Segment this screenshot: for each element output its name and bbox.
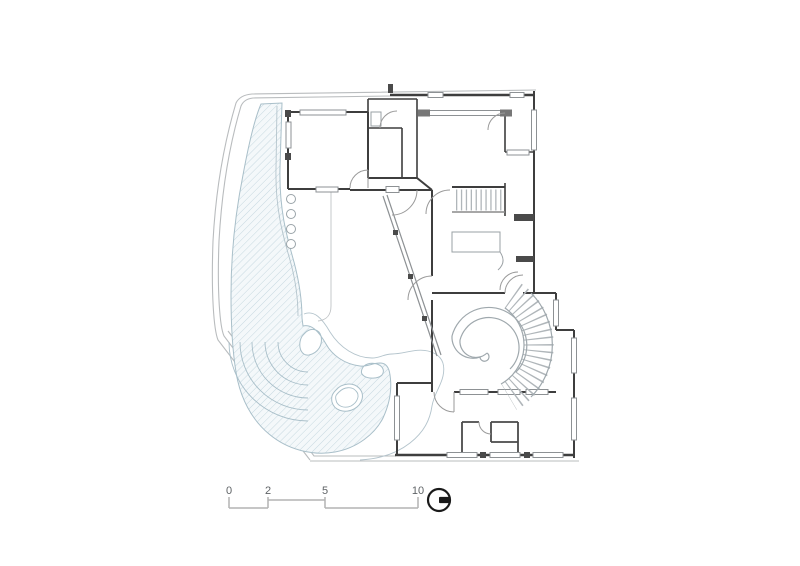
window-symbol — [316, 187, 338, 192]
pier — [514, 214, 534, 221]
door-swing — [505, 275, 523, 293]
pier — [480, 452, 486, 458]
window-symbol — [532, 110, 537, 150]
door-swing — [426, 190, 450, 214]
floor-plan-page: 0 2 5 10 — [0, 0, 800, 566]
pier — [524, 452, 530, 458]
window-symbol — [507, 150, 529, 155]
pier — [516, 256, 534, 262]
room-top-bathroom — [368, 99, 417, 178]
terrace-edge-line — [318, 190, 331, 321]
spiral-wall-inner — [460, 318, 519, 369]
room-top-left — [288, 112, 368, 189]
window-symbol — [510, 93, 524, 98]
spiral-fan-inner-arc — [501, 308, 524, 384]
island-inner-ring — [336, 388, 358, 407]
door-swing — [392, 190, 417, 215]
planter-circle — [287, 225, 296, 234]
lower-bathroom-walls — [462, 422, 518, 455]
window-symbol — [498, 390, 520, 395]
window-symbol — [395, 396, 400, 440]
scale-label-10: 10 — [412, 485, 424, 497]
straight-stair — [452, 187, 505, 212]
door-swing — [434, 392, 454, 412]
window-symbol — [447, 453, 477, 458]
window-symbol — [490, 453, 520, 458]
scale-bar: 0 2 5 10 — [226, 485, 424, 508]
pier — [285, 110, 291, 117]
window-symbol — [460, 390, 488, 395]
built-in-counter — [452, 232, 503, 270]
spiral-wall-curl2 — [452, 336, 480, 358]
door-swing — [350, 170, 368, 188]
spiral-wall-curl — [460, 340, 487, 357]
north-orientation-icon — [428, 489, 450, 511]
scale-bar-line — [229, 497, 418, 508]
planter-circle — [287, 210, 296, 219]
scale-label-0: 0 — [226, 485, 232, 497]
pier — [388, 84, 393, 93]
planter-circle — [287, 195, 296, 204]
scale-label-2: 2 — [265, 485, 271, 497]
scale-label-5: 5 — [322, 485, 328, 497]
planter-circles — [287, 195, 296, 249]
window-symbol — [428, 93, 443, 98]
room-top-right-closet — [505, 112, 534, 152]
planter-circle — [287, 240, 296, 249]
window-end-cap — [418, 110, 430, 117]
floor-plan-drawing: 0 2 5 10 — [0, 0, 800, 566]
spiral-stair — [452, 293, 552, 397]
spiral-room-walls — [432, 293, 574, 458]
window-symbol — [533, 453, 563, 458]
window-symbol — [554, 300, 559, 326]
window-symbol — [572, 398, 577, 440]
window-symbol — [286, 122, 291, 148]
door-swing — [380, 111, 397, 128]
window-symbol — [300, 110, 346, 115]
pier — [285, 153, 291, 160]
window-symbol — [572, 338, 577, 373]
door-swing — [479, 422, 491, 434]
window-symbol — [386, 187, 399, 193]
